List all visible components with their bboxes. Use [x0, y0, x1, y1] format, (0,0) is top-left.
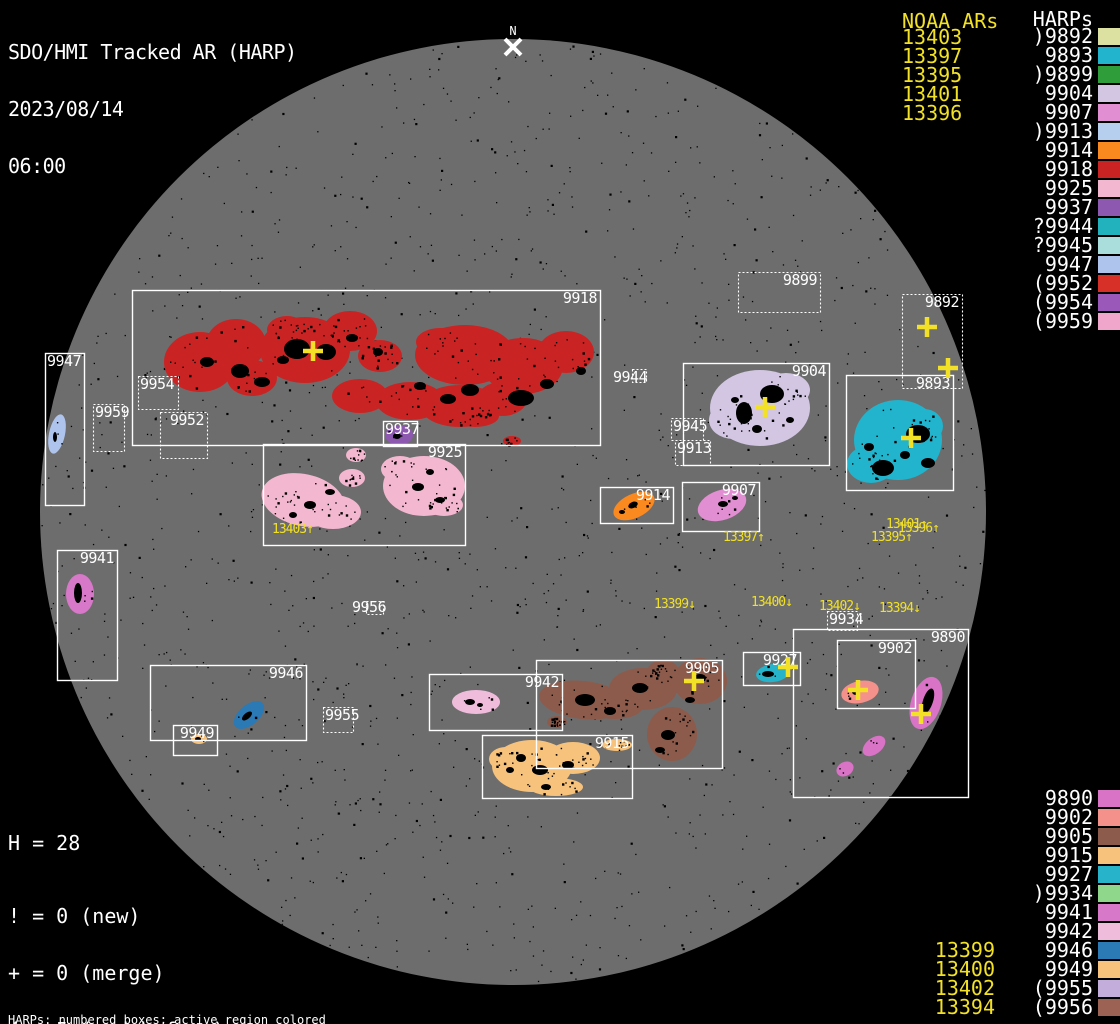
harp-color-swatch [1098, 828, 1120, 845]
harp-box-label-9918: 9918 [563, 289, 598, 307]
noaa-ars-top-list: 1340313397133951340113396 [902, 28, 962, 123]
harp-color-swatch [1098, 218, 1120, 235]
harp-color-swatch [1098, 313, 1120, 330]
noaa-ar-number [920, 846, 995, 865]
harp-number: (9956 [995, 998, 1093, 1017]
active-region-9941 [66, 574, 94, 614]
harp-color-swatch [1098, 104, 1120, 121]
harp-box-label-9905: 9905 [685, 659, 719, 677]
harp-color-swatch [1098, 275, 1120, 292]
noaa-ar-number: 13396 [902, 104, 962, 123]
harp-color-swatch [1098, 904, 1120, 921]
harp-box-label-9892: 9892 [925, 293, 959, 311]
noaa-ar-number [920, 865, 995, 884]
harp-full-disk-figure: 9918992599379947994199049893991499079946… [0, 0, 1120, 1024]
harp-box-label-9913: 9913 [677, 439, 711, 457]
noaa-ar-number [920, 827, 995, 846]
noaa-ar-disk-label: 13403↑ [272, 522, 313, 537]
noaa-ar-number [920, 903, 995, 922]
noaa-ar-disk-label: 13395↑ [871, 530, 912, 545]
harp-box-label-9904: 9904 [792, 362, 827, 380]
harp-disk-label: 9956 [352, 598, 387, 616]
harp-color-swatch [1098, 790, 1120, 807]
harp-box-label-9893: 9893 [916, 374, 950, 392]
noaa-ar-number: 13394 [920, 998, 995, 1017]
footer-harps-note: HARPs: numbered boxes; active region col… [8, 1014, 427, 1024]
harp-box-label-9947: 9947 [47, 352, 81, 370]
harp-color-swatch [1098, 885, 1120, 902]
harp-color-swatch [1098, 294, 1120, 311]
harp-color-swatch [1098, 256, 1120, 273]
harp-count: H = 28 [8, 831, 80, 855]
harp-box-label-9914: 9914 [636, 486, 671, 504]
harp-box-label-9937: 9937 [385, 420, 419, 438]
noaa-ar-disk-label: 13400↓ [751, 595, 792, 610]
app-title: SDO/HMI Tracked AR (HARP) [8, 43, 297, 62]
harp-color-swatch [1098, 847, 1120, 864]
harps-top-list: )98929893)989999049907)99139914991899259… [1000, 27, 1120, 331]
north-label: N [509, 24, 516, 38]
harp-color-swatch [1098, 961, 1120, 978]
harp-color-swatch [1098, 980, 1120, 997]
harp-color-swatch [1098, 923, 1120, 940]
noaa-ar-number [920, 808, 995, 827]
harp-box-label-9907: 9907 [722, 481, 756, 499]
harp-box-label-9942: 9942 [525, 673, 559, 691]
harp-color-swatch [1098, 123, 1120, 140]
harp-disk-label: 9944 [613, 368, 648, 386]
harp-color-swatch [1098, 142, 1120, 159]
harp-color-swatch [1098, 199, 1120, 216]
harp-box-label-9890: 9890 [931, 628, 966, 646]
noaa-ar-disk-label: 13394↓ [879, 601, 920, 616]
active-region-9942 [452, 690, 500, 714]
harp-box-label-9949: 9949 [180, 724, 215, 742]
harp-color-swatch [1098, 28, 1120, 45]
harps-bottom-list: 98909902990599159927)9934994199421339999… [920, 789, 1120, 1017]
harp-color-swatch [1098, 180, 1120, 197]
harp-color-swatch [1098, 161, 1120, 178]
flag-merge: + = 0 (merge) [8, 964, 237, 983]
harp-box-label-9954: 9954 [140, 375, 175, 393]
harp-box-label-9899: 9899 [783, 271, 818, 289]
harp-box-label-9952: 9952 [170, 411, 204, 429]
harp-box-label-9945: 9945 [673, 417, 707, 435]
flag-new: ! = 0 (new) [8, 907, 237, 926]
harp-box-label-9959: 9959 [95, 403, 130, 421]
noaa-ar-number [920, 884, 995, 903]
footer-notes: HARPs: numbered boxes; active region col… [8, 990, 427, 1024]
harp-color-swatch [1098, 237, 1120, 254]
title-block: SDO/HMI Tracked AR (HARP) 2023/08/14 06:… [8, 5, 297, 214]
harp-box-label-9955: 9955 [325, 706, 359, 724]
harp-list-row: 13394(9956 [920, 998, 1120, 1017]
harp-color-swatch [1098, 866, 1120, 883]
harp-box-label-9946: 9946 [269, 664, 304, 682]
harp-box-label-9941: 9941 [80, 549, 115, 567]
harp-color-swatch [1098, 66, 1120, 83]
harp-color-swatch [1098, 85, 1120, 102]
harp-box-label-9925: 9925 [428, 443, 462, 461]
harp-list-row: (9959 [1000, 312, 1120, 331]
harp-box-label-9915: 9915 [595, 734, 629, 752]
harp-number: (9959 [1000, 312, 1093, 331]
noaa-ar-disk-label: 13397↑ [723, 530, 764, 545]
date-label: 2023/08/14 [8, 100, 297, 119]
harp-box-label-9902: 9902 [878, 639, 912, 657]
harp-color-swatch [1098, 999, 1120, 1016]
noaa-ar-number [920, 789, 995, 808]
noaa-ar-disk-label: 13399↓ [654, 597, 695, 612]
harp-color-swatch [1098, 942, 1120, 959]
time-label: 06:00 [8, 157, 297, 176]
noaa-ar-disk-label: 13402↓ [819, 599, 860, 614]
harp-color-swatch [1098, 47, 1120, 64]
harp-color-swatch [1098, 809, 1120, 826]
